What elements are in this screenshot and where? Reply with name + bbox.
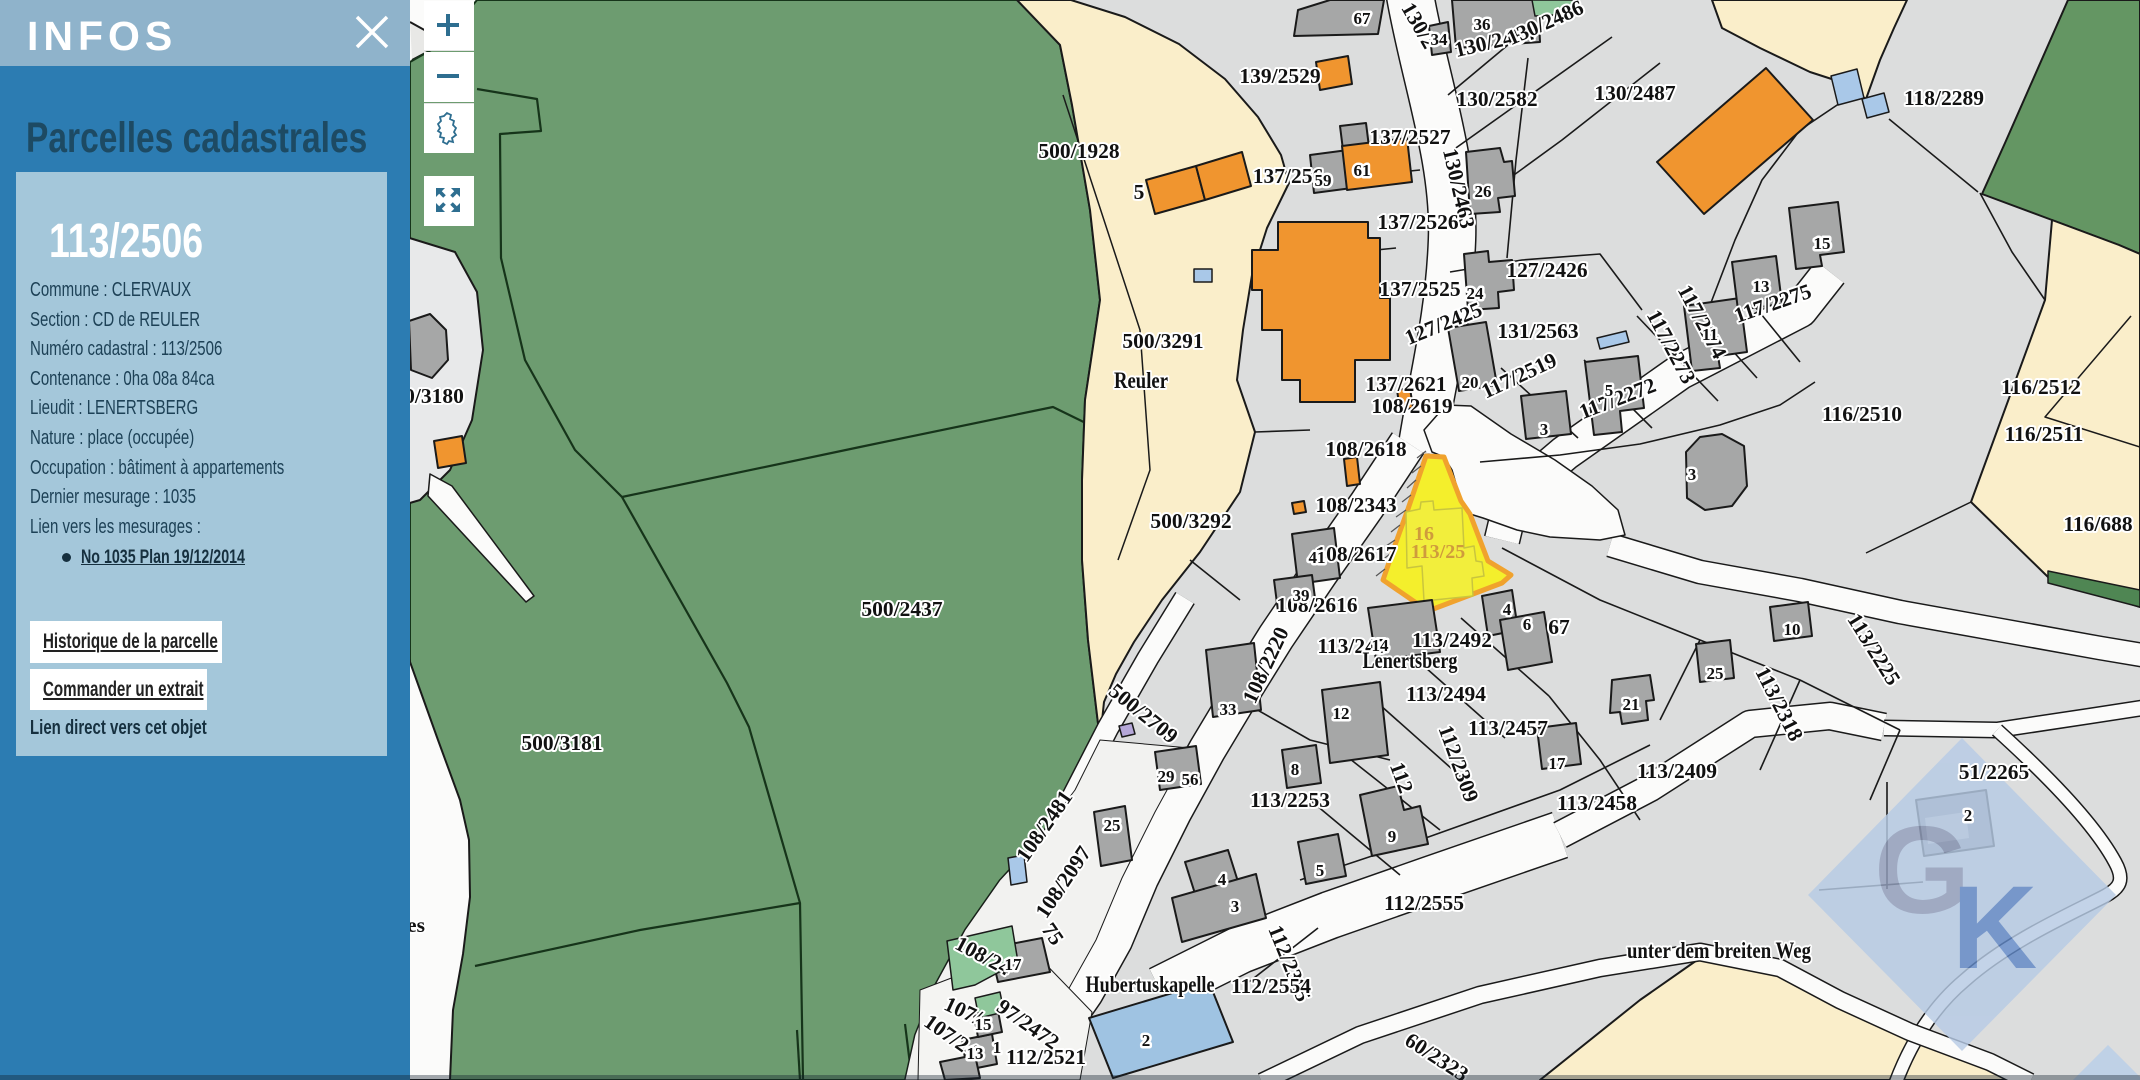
svg-text:500/2437: 500/2437 <box>861 597 942 621</box>
svg-text:13: 13 <box>967 1044 984 1063</box>
svg-text:5: 5 <box>1316 861 1325 880</box>
svg-text:15: 15 <box>1814 234 1831 253</box>
svg-text:137/2527: 137/2527 <box>1369 125 1450 149</box>
svg-text:9: 9 <box>1388 827 1397 846</box>
svg-text:118/2289: 118/2289 <box>1904 86 1984 110</box>
svg-text:116/2511: 116/2511 <box>2005 422 2084 446</box>
svg-text:108/2343: 108/2343 <box>1315 493 1396 517</box>
svg-text:139/2529: 139/2529 <box>1239 64 1320 88</box>
svg-text:112/2555: 112/2555 <box>1384 891 1464 915</box>
svg-text:14: 14 <box>1372 636 1390 655</box>
svg-text:33: 33 <box>1220 700 1237 719</box>
svg-text:34: 34 <box>1431 30 1449 49</box>
svg-text:26: 26 <box>1475 182 1492 201</box>
svg-text:4: 4 <box>1503 600 1512 619</box>
svg-text:116/2512: 116/2512 <box>2001 375 2081 399</box>
svg-text:K: K <box>1952 862 2037 994</box>
svg-text:500/1928: 500/1928 <box>1038 139 1119 163</box>
svg-text:25: 25 <box>1104 816 1121 835</box>
svg-text:3: 3 <box>1231 897 1240 916</box>
svg-text:3: 3 <box>1688 465 1697 484</box>
svg-text:24: 24 <box>1467 284 1485 303</box>
svg-text:15: 15 <box>975 1015 992 1034</box>
svg-text:116/688: 116/688 <box>2063 512 2133 536</box>
svg-text:2: 2 <box>1964 806 1973 825</box>
svg-text:17: 17 <box>1005 955 1023 974</box>
svg-text:2: 2 <box>1142 1031 1151 1050</box>
svg-text:25: 25 <box>1707 664 1724 683</box>
svg-text:113/2409: 113/2409 <box>1637 759 1717 783</box>
svg-text:11: 11 <box>1702 325 1718 344</box>
svg-text:20: 20 <box>1462 373 1479 392</box>
svg-text:67: 67 <box>1354 9 1372 28</box>
svg-text:500/3292: 500/3292 <box>1150 509 1231 533</box>
svg-text:67: 67 <box>1548 615 1570 639</box>
svg-text:10: 10 <box>1784 620 1801 639</box>
svg-text:112/2554: 112/2554 <box>1231 974 1311 998</box>
svg-text:116/2510: 116/2510 <box>1822 402 1902 426</box>
svg-text:5: 5 <box>1605 381 1614 400</box>
svg-text:127/2426: 127/2426 <box>1506 258 1587 282</box>
svg-text:41: 41 <box>1309 548 1326 567</box>
svg-text:108/2618: 108/2618 <box>1325 437 1406 461</box>
svg-text:Hubertuskapelle: Hubertuskapelle <box>1086 972 1215 997</box>
svg-text:12: 12 <box>1333 704 1350 723</box>
svg-text:56: 56 <box>1182 770 1199 789</box>
svg-text:39: 39 <box>1293 586 1310 605</box>
svg-text:108/2617: 108/2617 <box>1315 542 1396 566</box>
svg-text:0/3180: 0/3180 <box>404 384 464 408</box>
svg-text:113/25: 113/25 <box>1411 541 1465 563</box>
svg-text:6: 6 <box>1523 615 1532 634</box>
svg-text:137/256: 137/256 <box>1253 164 1324 188</box>
svg-text:21: 21 <box>1623 695 1640 714</box>
svg-text:1: 1 <box>993 1038 1002 1057</box>
svg-text:113/2457: 113/2457 <box>1468 716 1548 740</box>
svg-text:59: 59 <box>1315 171 1332 190</box>
svg-text:51/2265: 51/2265 <box>1959 760 2029 784</box>
svg-text:500/3181: 500/3181 <box>521 731 602 755</box>
svg-text:137/2621: 137/2621 <box>1365 372 1446 396</box>
svg-text:5: 5 <box>1134 180 1145 204</box>
svg-text:unter dem breiten Weg: unter dem breiten Weg <box>1627 938 1811 963</box>
svg-text:137/2526: 137/2526 <box>1377 210 1458 234</box>
svg-text:137/2525: 137/2525 <box>1379 277 1460 301</box>
svg-text:500/3291: 500/3291 <box>1122 329 1203 353</box>
svg-text:29: 29 <box>1158 767 1175 786</box>
svg-text:8: 8 <box>1291 760 1300 779</box>
svg-text:130/2487: 130/2487 <box>1594 81 1675 105</box>
svg-text:108/2616: 108/2616 <box>1276 593 1357 617</box>
svg-text:113/2458: 113/2458 <box>1557 791 1637 815</box>
svg-text:108/2619: 108/2619 <box>1371 394 1452 418</box>
svg-text:131/2563: 131/2563 <box>1497 319 1578 343</box>
svg-text:3: 3 <box>1540 420 1549 439</box>
svg-text:Reuler: Reuler <box>1114 368 1168 393</box>
svg-text:113/2253: 113/2253 <box>1250 788 1330 812</box>
svg-text:13: 13 <box>1753 277 1770 296</box>
svg-text:130/2582: 130/2582 <box>1456 87 1537 111</box>
svg-text:4: 4 <box>1218 870 1227 889</box>
svg-text:61: 61 <box>1354 161 1371 180</box>
svg-text:36: 36 <box>1474 15 1491 34</box>
svg-text:113/2494: 113/2494 <box>1406 682 1486 706</box>
svg-text:17: 17 <box>1549 754 1567 773</box>
